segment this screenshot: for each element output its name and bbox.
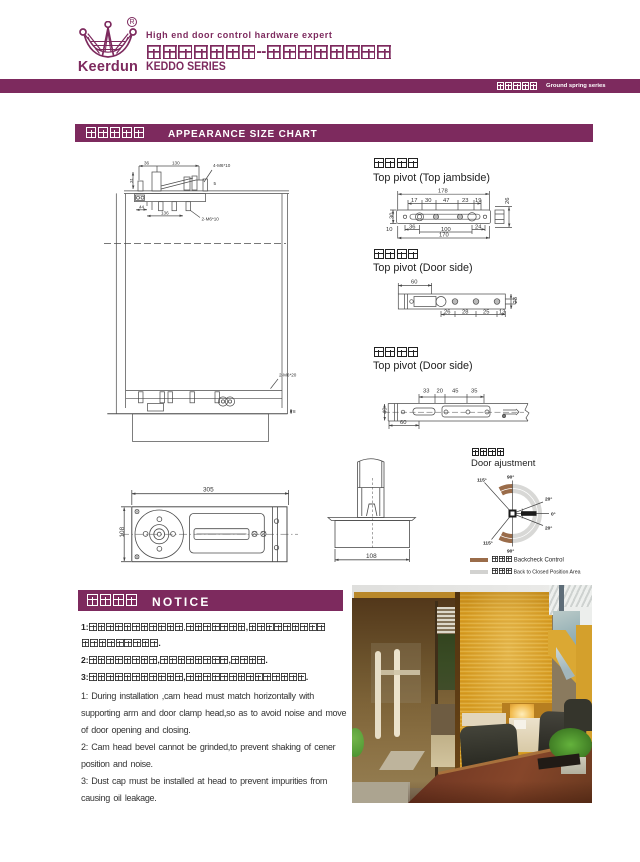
- svg-text:90°: 90°: [507, 475, 514, 481]
- svg-text:130: 130: [172, 161, 180, 166]
- svg-text:26: 26: [444, 310, 450, 316]
- svg-text:115°: 115°: [483, 541, 493, 547]
- svg-text:90°: 90°: [507, 549, 514, 555]
- svg-text:20°: 20°: [545, 526, 552, 532]
- svg-text:5: 5: [214, 181, 217, 186]
- svg-text:13: 13: [499, 310, 505, 316]
- svg-text:24: 24: [475, 225, 482, 231]
- svg-text:170: 170: [439, 233, 449, 239]
- svg-text:2-M6*20: 2-M6*20: [279, 373, 297, 378]
- svg-text:36: 36: [144, 161, 150, 166]
- svg-text:4-M6*10: 4-M6*10: [213, 163, 231, 168]
- svg-text:178: 178: [438, 189, 448, 195]
- svg-text:115°: 115°: [477, 478, 487, 484]
- svg-text:108: 108: [366, 553, 377, 560]
- svg-text:33: 33: [423, 389, 429, 395]
- svg-text:0°: 0°: [551, 512, 556, 518]
- svg-text:60: 60: [411, 280, 417, 286]
- svg-text:17: 17: [411, 198, 417, 204]
- svg-text:19: 19: [475, 198, 481, 204]
- svg-text:60: 60: [400, 420, 406, 426]
- svg-text:30: 30: [390, 213, 396, 219]
- svg-text:30: 30: [425, 198, 431, 204]
- svg-text:45: 45: [452, 389, 458, 395]
- svg-text:25: 25: [483, 310, 489, 316]
- svg-text:20°: 20°: [545, 497, 552, 503]
- svg-text:108: 108: [119, 526, 126, 537]
- svg-text:10: 10: [386, 227, 392, 233]
- svg-text:40: 40: [383, 408, 389, 414]
- svg-text:20: 20: [437, 389, 443, 395]
- svg-text:305: 305: [203, 487, 214, 494]
- svg-text:8: 8: [293, 409, 296, 414]
- svg-text:47: 47: [443, 198, 449, 204]
- svg-text:31: 31: [129, 177, 134, 183]
- svg-text:26: 26: [505, 198, 511, 204]
- svg-text:35: 35: [471, 389, 477, 395]
- svg-text:23: 23: [513, 297, 519, 303]
- svg-text:28: 28: [462, 310, 468, 316]
- svg-text:136: 136: [161, 211, 169, 216]
- svg-text:36: 36: [409, 225, 415, 231]
- svg-text:2-M6*10: 2-M6*10: [202, 217, 220, 222]
- svg-text:23: 23: [462, 198, 468, 204]
- svg-text:44: 44: [139, 205, 145, 210]
